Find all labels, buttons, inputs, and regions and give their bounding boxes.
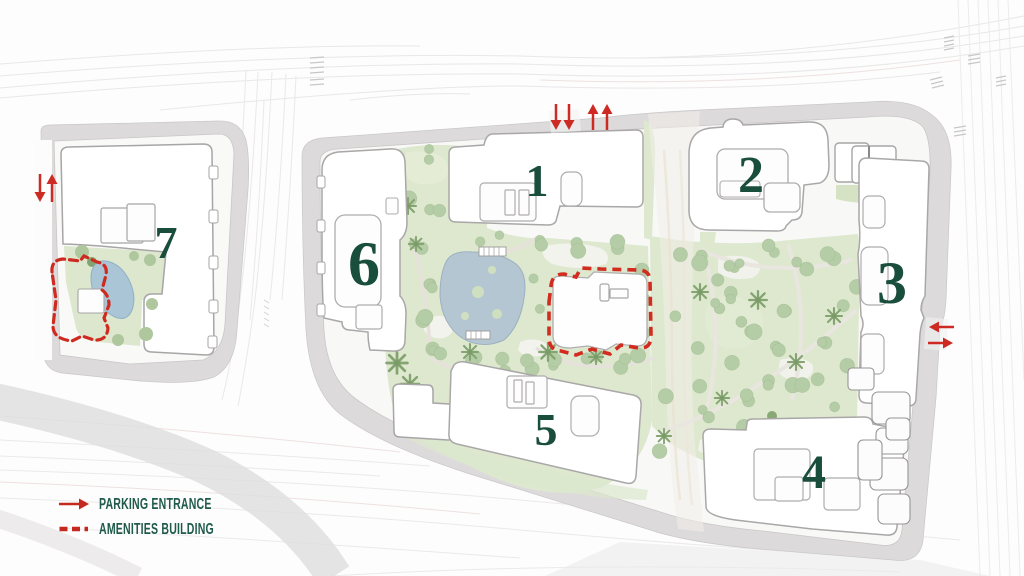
svg-text:5: 5 [535,404,558,455]
svg-text:1: 1 [526,155,549,206]
svg-text:AMENITIES BUILDING: AMENITIES BUILDING [99,520,214,538]
svg-text:PARKING ENTRANCE: PARKING ENTRANCE [99,495,212,513]
svg-text:6: 6 [348,228,380,299]
svg-text:4: 4 [802,446,826,499]
svg-text:2: 2 [738,147,764,204]
svg-text:3: 3 [877,250,907,316]
svg-text:7: 7 [155,217,178,268]
